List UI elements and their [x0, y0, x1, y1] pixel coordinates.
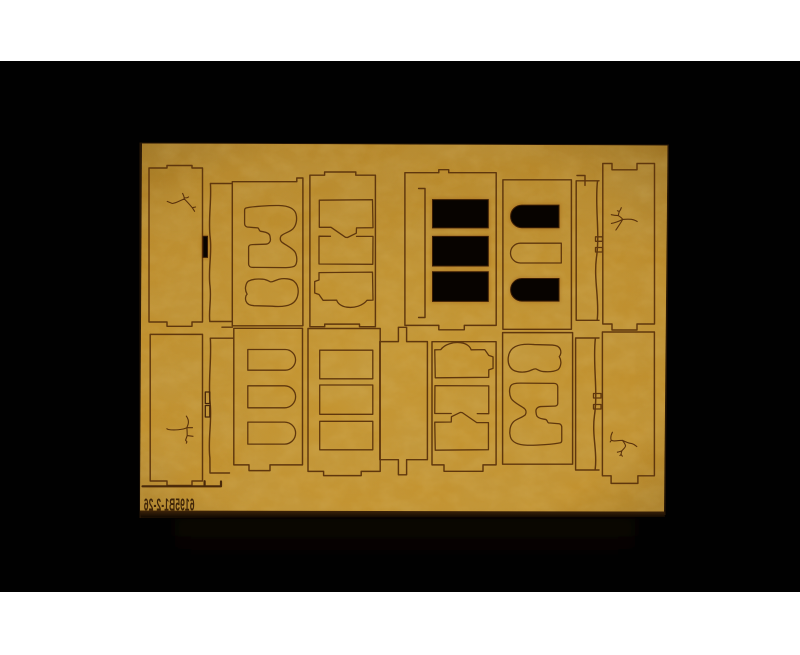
svg-text:6195B1-2-26: 6195B1-2-26: [144, 495, 195, 514]
